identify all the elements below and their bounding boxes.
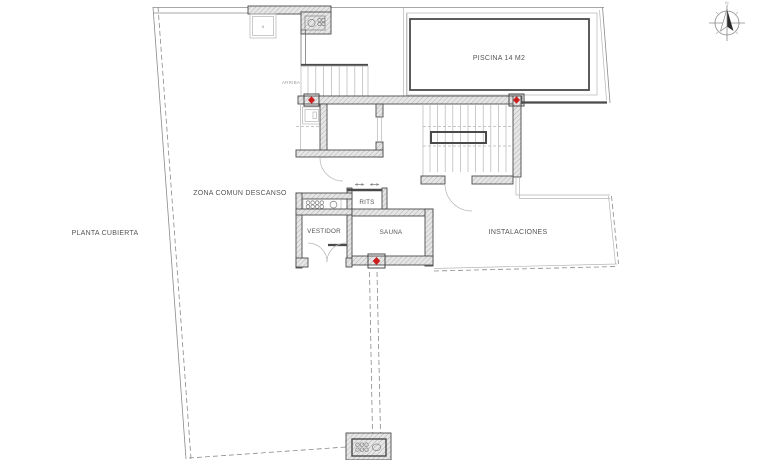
floor-plan-canvas: PISCINA 14 M2 a <box>0 0 770 460</box>
door-arc <box>320 158 343 181</box>
top-wall: a <box>248 6 331 38</box>
elevator-shaft <box>320 104 383 157</box>
shower-jets-fixture <box>303 200 341 210</box>
floor-plan-drawing: PISCINA 14 M2 a <box>0 0 770 460</box>
pool: PISCINA 14 M2 <box>403 7 610 103</box>
room-label-pool: PISCINA 14 M2 <box>473 55 525 62</box>
lobby-bottom-wall <box>296 150 383 157</box>
elevator-lobby <box>296 104 383 181</box>
skylight-mark: a <box>262 24 265 29</box>
central-wall-band <box>298 96 522 104</box>
washbasin-fixture <box>303 107 322 124</box>
walkway-dashed <box>370 272 381 434</box>
skylight-fixture: a <box>250 14 276 38</box>
stair-side-wall <box>301 30 306 66</box>
area-label-roof-level: PLANTA CUBIERTA <box>72 230 139 237</box>
stairs-up-label: ARRIBA <box>282 80 301 85</box>
service-block: RITS VESTIDOR SAUNA <box>296 183 433 268</box>
bottom-spa-fixture <box>346 433 391 460</box>
upper-staircase: ARRIBA <box>282 30 368 96</box>
room-label-installations: INSTALACIONES <box>489 229 548 236</box>
sliding-door-arrow-icon <box>355 183 379 186</box>
north-label: N <box>725 1 729 6</box>
stair-treads <box>430 105 506 172</box>
installations-terrace: INSTALACIONES <box>434 177 619 271</box>
main-staircase <box>421 96 521 211</box>
room-label-rits: RITS <box>359 199 374 206</box>
room-label-dressing: VESTIDOR <box>307 228 341 235</box>
stair-treads <box>308 66 363 96</box>
rits-right-wall <box>382 188 387 209</box>
door-arc <box>308 243 327 262</box>
stair-right-wall <box>513 96 521 177</box>
north-compass-icon: N <box>709 1 745 42</box>
room-label-sauna: SAUNA <box>380 229 403 236</box>
area-label-common: ZONA COMUN DESCANSO <box>193 190 287 197</box>
plot-boundary <box>153 7 403 459</box>
door-arc <box>445 184 472 211</box>
stair-handrail <box>431 132 486 143</box>
